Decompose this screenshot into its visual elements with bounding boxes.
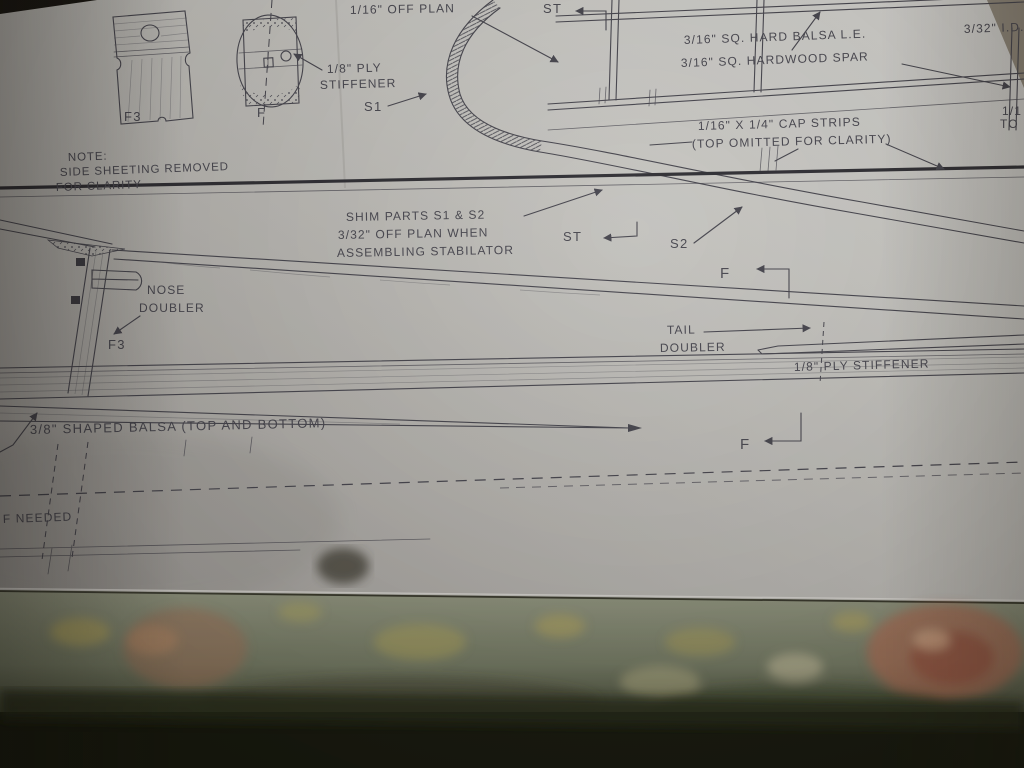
s2-label: S2 [670,236,689,251]
if-needed-label-cropped: F NEEDED [3,510,73,526]
edge-fragment-2: TO [1000,117,1019,131]
nose-doubler-line2: DOUBLER [139,301,205,315]
s1-label: S1 [364,99,383,114]
shim-parts-line2: 3/32" OFF PLAN WHEN [338,225,489,242]
st-label-mid: ST [563,229,582,244]
edge-fragment-1: 1/1 [1002,104,1022,118]
plan-drawing-canvas: F3 F [0,0,1024,768]
part-f-label: F [257,105,266,120]
f-section-upper-label: F [720,265,731,282]
shim-parts-line1: SHIM PARTS S1 & S2 [346,208,486,224]
f3-former-label: F3 [108,337,126,352]
f-section-lower-label: F [740,436,751,453]
shadow-blob [317,548,369,584]
note-line1: NOTE: [68,151,108,164]
bolt-block [76,258,85,266]
bolt-block [71,296,80,304]
part-f3-label: F3 [124,109,142,124]
shim-le-line2: 1/16" OFF PLAN [350,1,455,17]
nose-doubler-line1: NOSE [147,283,185,297]
tail-doubler-line1: TAIL [667,322,696,337]
tail-doubler-line2: DOUBLER [660,340,726,355]
st-label-top: ST [543,1,562,16]
ply-stiffener-front-line2: STIFFENER [320,76,397,92]
ply-stiffener-front-line1: 1/8" PLY [327,61,382,76]
id-fitting-label-cropped: 3/32" I.D. [964,20,1024,36]
photo-of-balsa-plan: F3 F [0,0,1024,768]
